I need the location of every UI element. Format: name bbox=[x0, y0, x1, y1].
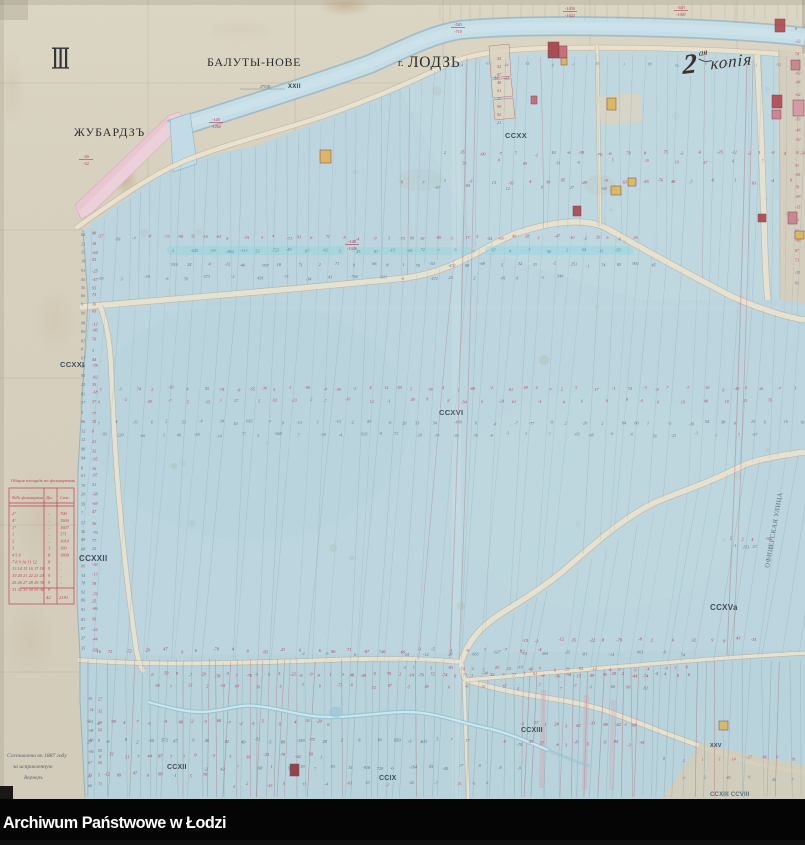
svg-text:Archiwum Państwowe w Łodzi: Archiwum Państwowe w Łodzi bbox=[3, 814, 226, 832]
